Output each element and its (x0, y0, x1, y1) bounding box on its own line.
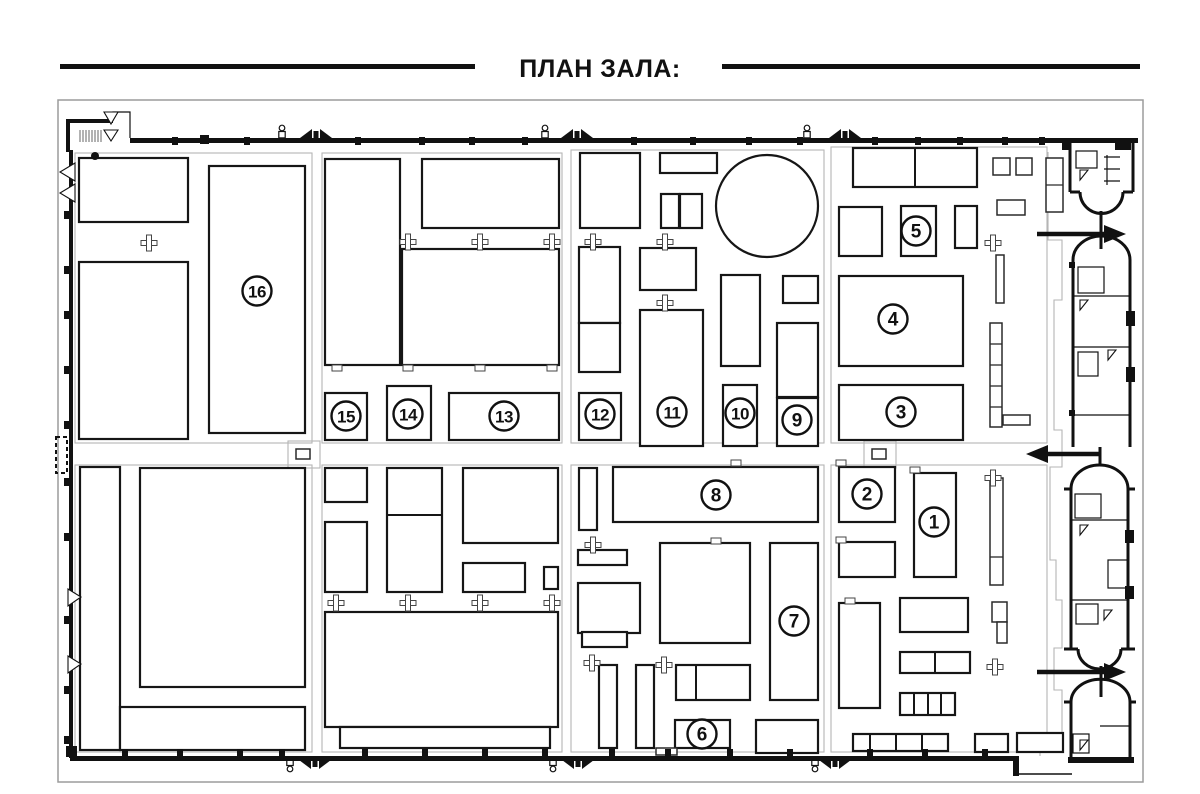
entrance-arrow-middle (1026, 445, 1100, 463)
booth-marker-9: 9 (783, 406, 812, 435)
booths-upper-midleft (325, 159, 559, 440)
booth-marker-12: 12 (586, 400, 615, 429)
door-lock-icon (804, 125, 810, 138)
vestibule-lower-middle (1064, 465, 1135, 697)
double-door-icon (557, 129, 597, 142)
svg-text:12: 12 (591, 406, 609, 425)
svg-text:10: 10 (731, 405, 749, 424)
floor-plan: ПЛАН ЗАЛА: (0, 0, 1200, 794)
booth-marker-5: 5 (902, 217, 931, 246)
svg-text:9: 9 (792, 411, 803, 432)
round-booth (716, 155, 818, 257)
booths-upper-right (839, 148, 977, 440)
booths-upper-center (579, 153, 818, 446)
vestibule-upper-middle (1069, 236, 1135, 466)
fixtures-upper-right (990, 158, 1063, 427)
svg-text:13: 13 (495, 408, 513, 427)
door-lock-icon (287, 759, 293, 772)
booths-lower-midleft (325, 468, 558, 748)
booth-marker-15: 15 (332, 402, 361, 431)
svg-text:1: 1 (929, 513, 940, 534)
booths-lower-right (839, 467, 1063, 752)
svg-text:4: 4 (888, 310, 899, 331)
booth-marker-16: 16 (243, 277, 272, 306)
page-title: ПЛАН ЗАЛА: (519, 55, 681, 83)
booth-marker-6: 6 (688, 720, 717, 749)
arrow-left-icon (1026, 445, 1048, 463)
booth-marker-10: 10 (726, 399, 755, 428)
door-swing-icon (104, 130, 118, 141)
booth-marker-8: 8 (702, 481, 731, 510)
title-rule-right (722, 64, 1140, 69)
door-lock-icon (550, 759, 556, 772)
booth-marker-14: 14 (394, 400, 423, 429)
booths-upper-left (79, 158, 305, 439)
svg-text:3: 3 (896, 403, 907, 424)
svg-text:2: 2 (862, 485, 873, 506)
door-lock-icon (279, 125, 285, 138)
door-lock-icon (542, 125, 548, 138)
door-lock-icon (812, 759, 818, 772)
svg-text:8: 8 (711, 486, 722, 507)
double-door-icon (825, 129, 865, 142)
svg-text:14: 14 (399, 406, 418, 425)
door-swing-icon (60, 184, 75, 202)
booths-lower-left (80, 467, 305, 750)
svg-text:16: 16 (248, 283, 266, 302)
double-door-icon (295, 756, 335, 769)
booth-marker-1: 1 (920, 508, 949, 537)
booth-marker-13: 13 (490, 402, 519, 431)
svg-text:6: 6 (697, 725, 708, 746)
title-bar: ПЛАН ЗАЛА: (60, 55, 1140, 83)
svg-text:5: 5 (911, 222, 922, 243)
double-door-icon (815, 756, 855, 769)
double-door-icon (296, 129, 336, 142)
booth-marker-2: 2 (853, 480, 882, 509)
booth-marker-3: 3 (887, 398, 916, 427)
svg-text:7: 7 (789, 612, 800, 633)
double-door-icon (558, 756, 598, 769)
booth-marker-4: 4 (879, 305, 908, 334)
booth-marker-7: 7 (780, 607, 809, 636)
title-rule-left (60, 64, 475, 69)
svg-text:11: 11 (664, 404, 681, 423)
page: ПЛАН ЗАЛА: (0, 0, 1200, 794)
booth-marker-11: 11 (658, 398, 687, 427)
door-swing-icon (60, 163, 75, 181)
svg-text:15: 15 (337, 408, 355, 427)
